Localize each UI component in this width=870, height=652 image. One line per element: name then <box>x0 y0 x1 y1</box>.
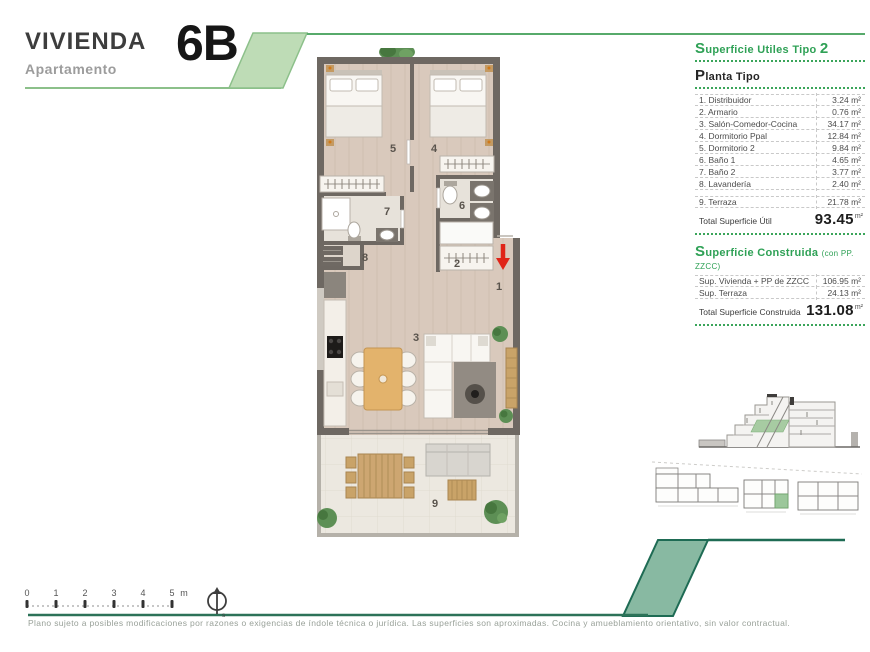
window <box>317 288 324 370</box>
built-surface-title: Superficie Construida (con PP. ZZCC) <box>695 243 865 272</box>
room-label-distribuidor: 1 <box>496 281 502 293</box>
useful-total-row: Total Superficie Útil 93.45m² <box>695 208 865 230</box>
built-row-label: Sup. Terraza <box>699 288 816 298</box>
useful-total-unit: m² <box>855 213 863 220</box>
built-row-label: Sup. Vivienda + PP de ZZCC <box>699 276 816 286</box>
scale-tick-label: 5 <box>169 588 174 598</box>
room-label-dormitorio-2: 5 <box>390 143 396 155</box>
floor-type-title: Planta Tipo <box>695 67 865 84</box>
useful-surface-title: Superficie Utiles Tipo 2 <box>695 40 865 57</box>
north-compass: s <box>208 587 226 619</box>
terrace-dining <box>346 454 414 498</box>
brochure-page: VIVIENDA Apartamento 6B Superficie Utile… <box>0 0 870 652</box>
kitchen <box>324 272 346 426</box>
room-label-armario: 2 <box>454 258 460 270</box>
room-label: 8. Lavandería <box>699 179 816 189</box>
kitchen-sink <box>327 382 343 396</box>
bedroom-2-wardrobe <box>320 176 384 192</box>
disclaimer-text: Plano sujeto a posibles modificaciones p… <box>28 618 838 628</box>
dotted-divider <box>695 324 865 326</box>
armario-closet <box>440 222 493 270</box>
room-label: 5. Dormitorio 2 <box>699 143 816 153</box>
terrace-coffee-table <box>448 480 476 500</box>
useful-total-label: Total Superficie Útil <box>699 216 815 229</box>
room-area: 2.40 m² <box>816 177 862 191</box>
highlighted-unit-front <box>775 494 788 508</box>
room-label-salon: 3 <box>413 332 419 344</box>
cooktop <box>327 336 343 358</box>
scale-numbers: 0 1 2 3 4 5 m <box>24 588 187 598</box>
room-label: 9. Terraza <box>699 197 816 207</box>
room-label-bano-2: 7 <box>384 206 390 218</box>
room-label: 4. Dormitorio Ppal <box>699 131 816 141</box>
room-label: 7. Baño 2 <box>699 167 816 177</box>
unit-number: 6B <box>176 14 238 72</box>
table-row: 8. Lavandería 2.40 m² <box>695 178 865 190</box>
useful-surface-title-text: Superficie Utiles Tipo <box>695 44 817 56</box>
scale-ticks <box>26 600 174 608</box>
room-label: 3. Salón-Comedor-Cocina <box>699 119 816 129</box>
bedroom-ppal-bed <box>430 65 493 146</box>
scale-tick-label: 4 <box>140 588 145 598</box>
scale-tick-label: 3 <box>111 588 116 598</box>
built-row-area: 24.13 m² <box>816 286 862 300</box>
terrace-sofa <box>426 444 490 476</box>
bedroom-ppal-wardrobe <box>440 156 494 172</box>
room-label-terraza: 9 <box>432 498 438 510</box>
room-area: 21.78 m² <box>816 195 862 209</box>
useful-surface-type-number: 2 <box>820 40 829 57</box>
table-row: Sup. Terraza 24.13 m² <box>695 287 865 299</box>
table-row: 9. Terraza 21.78 m² <box>695 196 865 208</box>
built-total-label: Total Superficie Construida <box>699 307 806 320</box>
wood-bench <box>506 348 517 408</box>
header: VIVIENDA Apartamento <box>25 28 146 77</box>
scale-tick-label: 0 <box>24 588 29 598</box>
built-total-unit: m² <box>855 304 863 311</box>
bedroom-2-bed <box>326 65 382 146</box>
surface-panel: Superficie Utiles Tipo 2 Planta Tipo 1. … <box>695 40 865 331</box>
room-label-dormitorio-ppal: 4 <box>431 143 438 155</box>
page-subtitle: Apartamento <box>25 61 146 77</box>
floor-plan: 1 2 3 4 5 6 7 8 9 <box>300 48 550 543</box>
useful-total-value: 93.45 <box>815 211 854 228</box>
front-elevation <box>648 458 866 520</box>
scale-unit-label: m <box>180 588 188 598</box>
room-label-lavanderia: 8 <box>362 252 368 264</box>
rug-coffee-table <box>454 362 496 418</box>
dotted-divider <box>695 87 865 89</box>
built-total-value: 131.08 <box>806 302 854 319</box>
room-label-bano-1: 6 <box>459 200 465 212</box>
room-label: 2. Armario <box>699 107 816 117</box>
green-parallelogram <box>229 33 307 88</box>
dotted-divider <box>695 233 865 235</box>
scale-tick-label: 1 <box>53 588 58 598</box>
room-label: 6. Baño 1 <box>699 155 816 165</box>
built-surface-title-text: Superficie Construida <box>695 247 818 259</box>
built-total-row: Total Superficie Construida 131.08m² <box>695 299 865 321</box>
section-elevation <box>697 390 862 462</box>
dining-set <box>351 348 416 410</box>
dotted-divider <box>695 60 865 62</box>
scale-tick-label: 2 <box>82 588 87 598</box>
page-title: VIVIENDA <box>25 28 146 56</box>
room-label: 1. Distribuidor <box>699 95 816 105</box>
